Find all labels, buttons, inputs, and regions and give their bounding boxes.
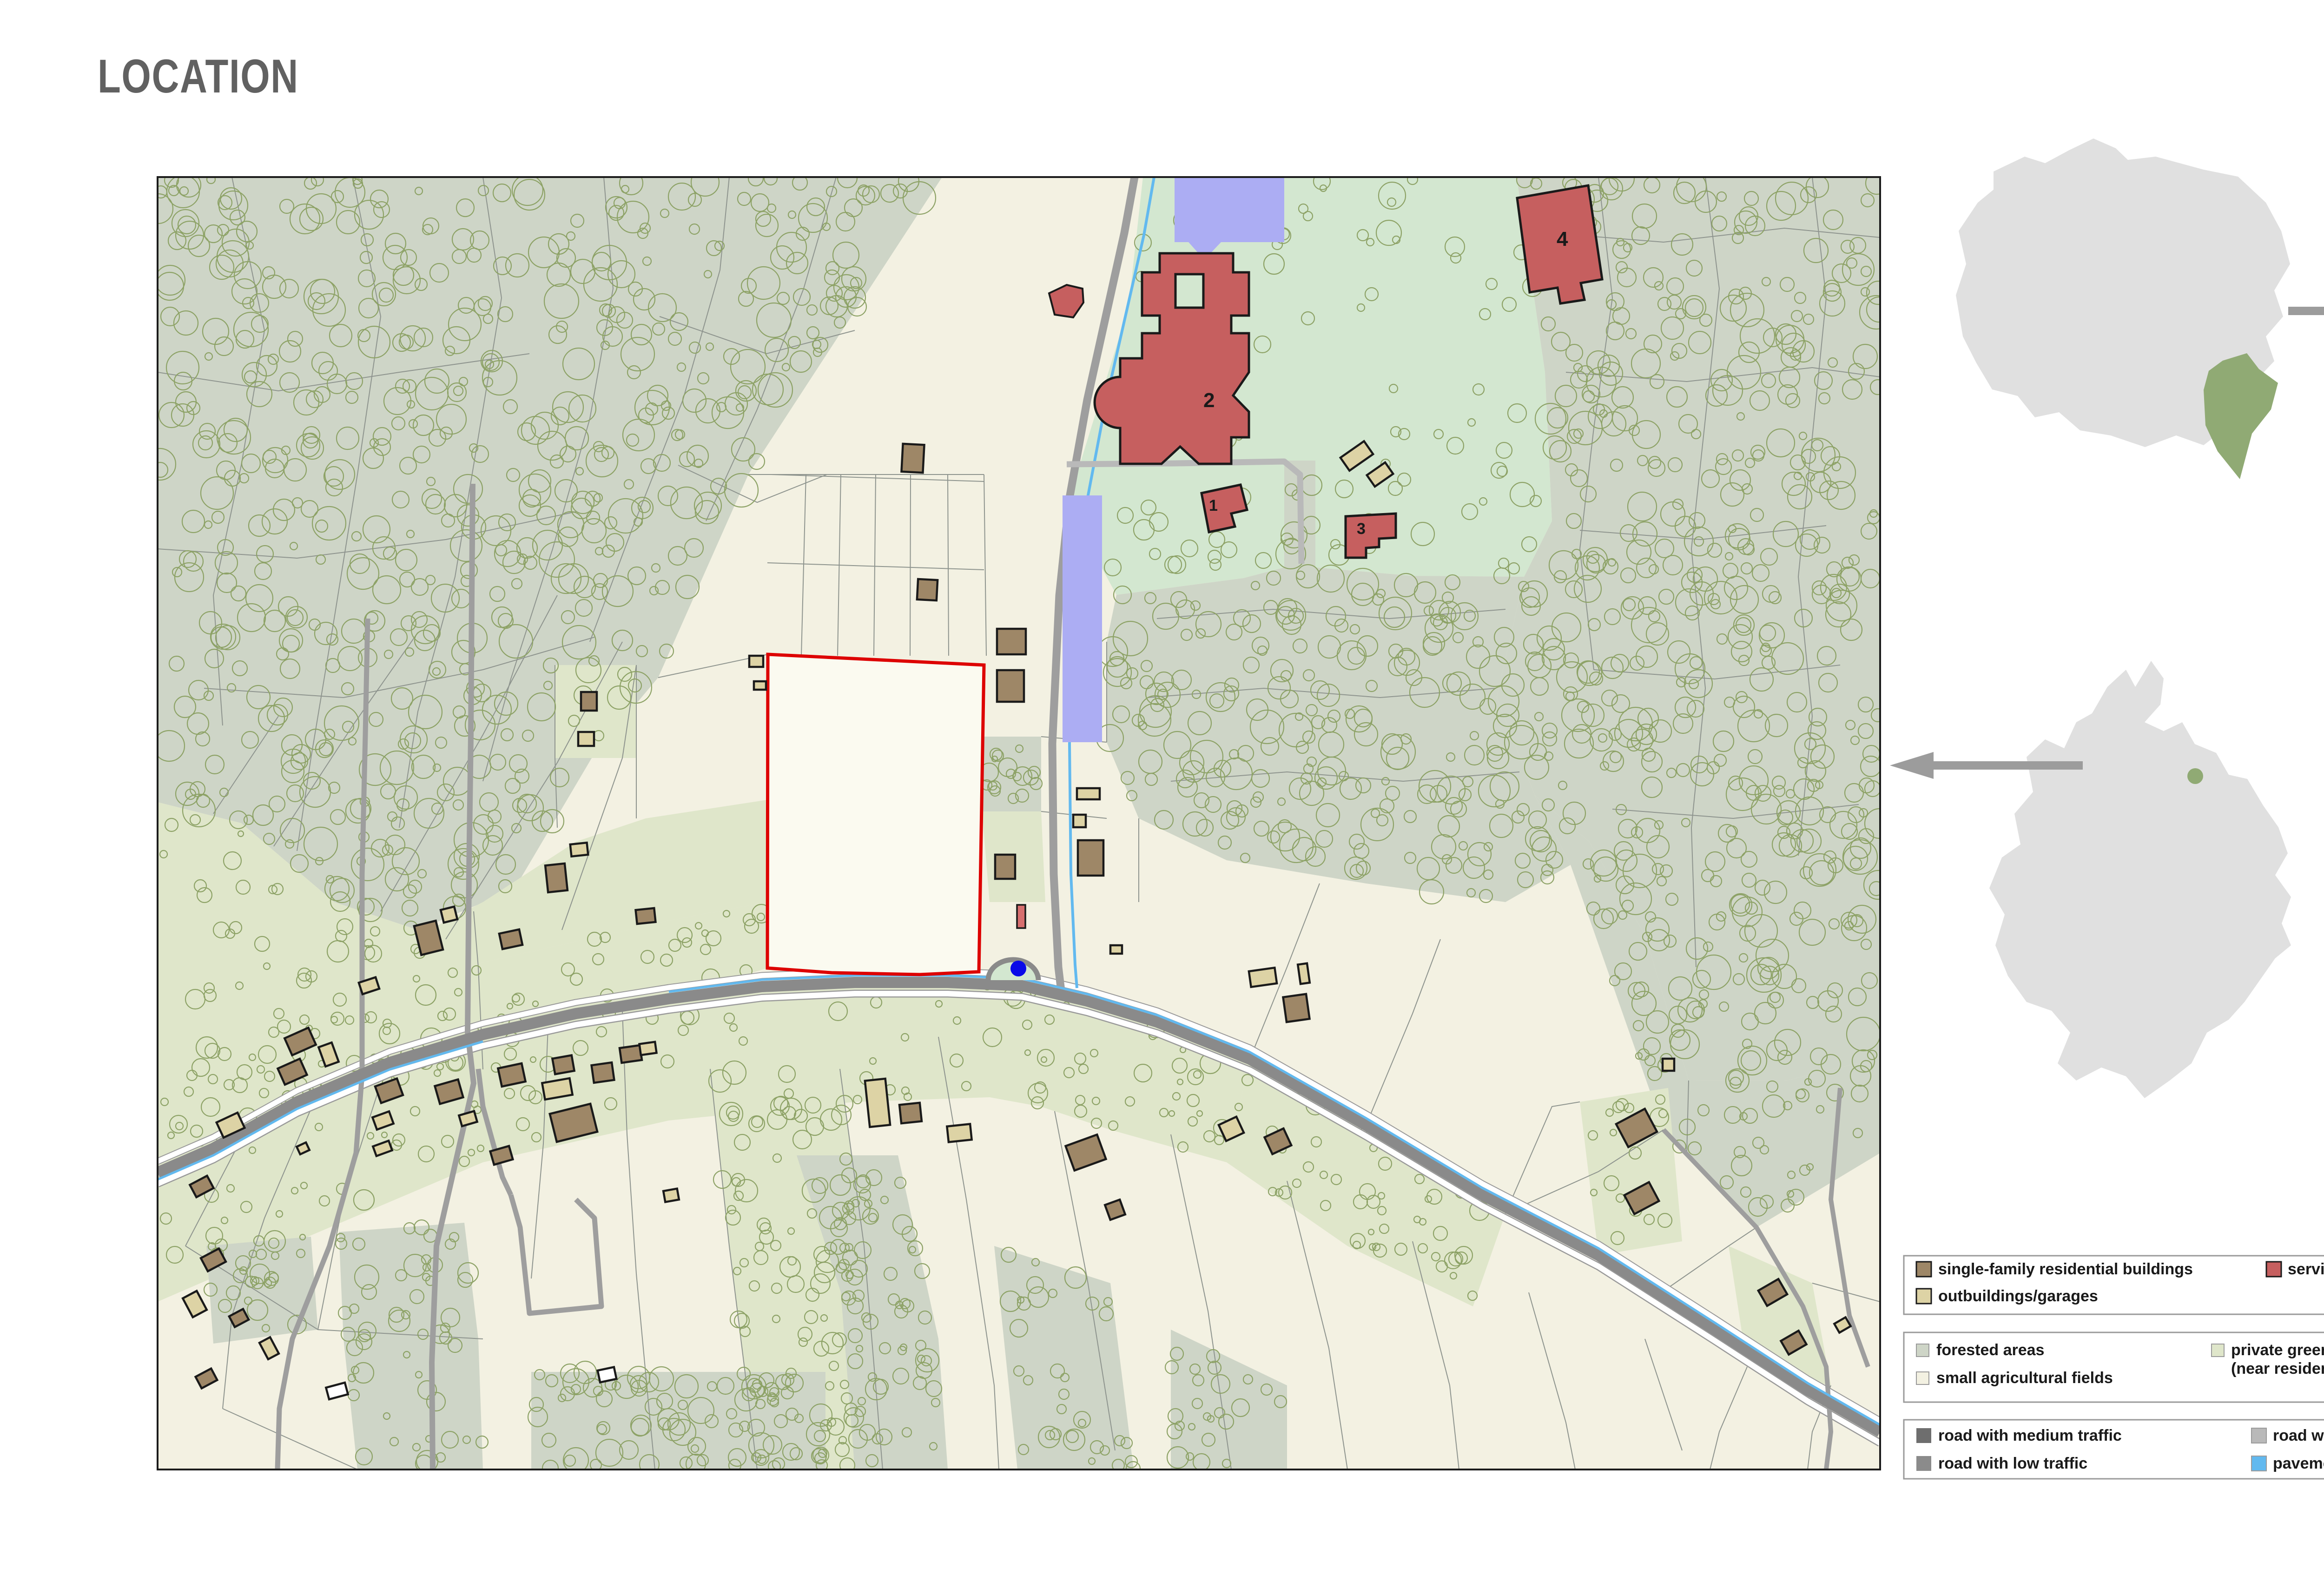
svg-text:pavement: pavement — [2273, 1455, 2324, 1472]
svg-text:LOCATION: LOCATION — [98, 49, 299, 103]
svg-text:(near residential buildings): (near residential buildings) — [2231, 1360, 2324, 1377]
svg-text:forested areas: forested areas — [1936, 1341, 2044, 1359]
svg-text:private green areas: private green areas — [2231, 1341, 2324, 1359]
svg-text:small agricultural fields: small agricultural fields — [1936, 1369, 2113, 1387]
svg-text:2: 2 — [1203, 389, 1215, 412]
svg-text:road with low traffic: road with low traffic — [1938, 1455, 2087, 1472]
svg-text:single-family residential buil: single-family residential buildings — [1938, 1260, 2193, 1278]
svg-text:outbuildings/garages: outbuildings/garages — [1938, 1287, 2098, 1305]
svg-text:service buildings: service buildings — [2288, 1260, 2324, 1278]
svg-text:3: 3 — [1357, 520, 1366, 538]
svg-text:road with very little traffic: road with very little traffic — [2273, 1427, 2324, 1444]
svg-text:4: 4 — [1557, 228, 1568, 250]
svg-text:1: 1 — [1209, 497, 1218, 514]
svg-text:road with medium traffic: road with medium traffic — [1938, 1427, 2122, 1444]
